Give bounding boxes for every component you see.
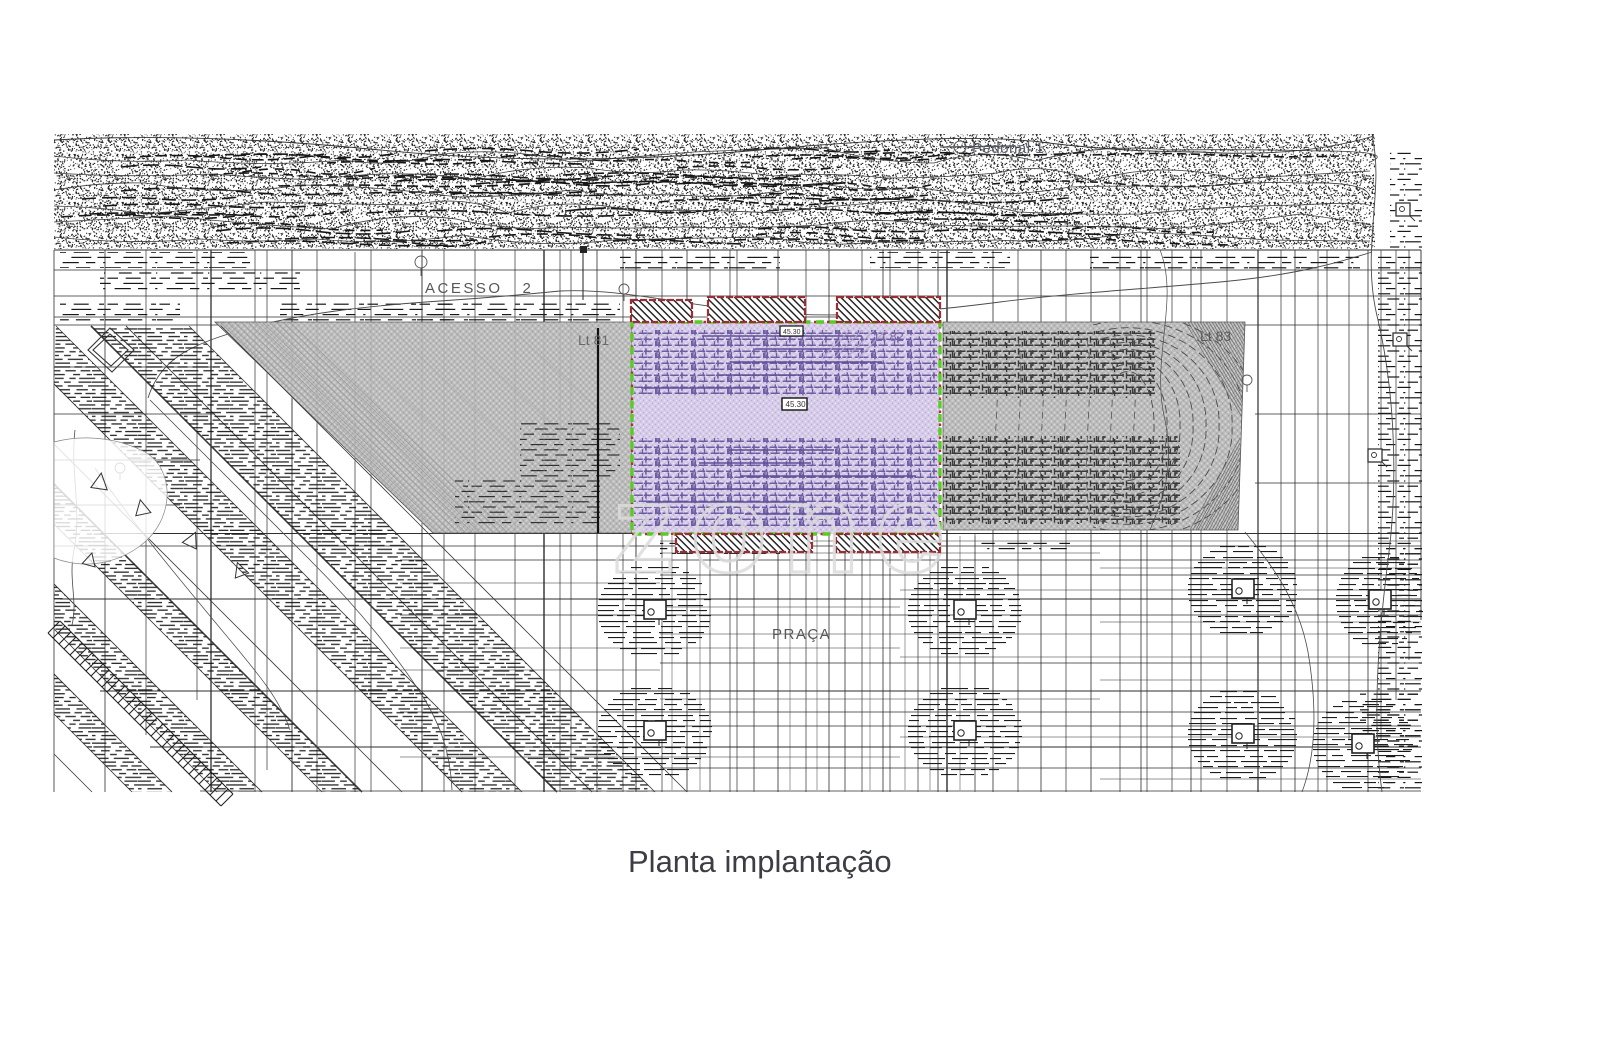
svg-text:45.30: 45.30 bbox=[783, 329, 801, 336]
svg-text:Pedonal 1: Pedonal 1 bbox=[972, 140, 1044, 157]
svg-text:45.30: 45.30 bbox=[786, 400, 807, 409]
svg-text:ACESSO 2: ACESSO 2 bbox=[425, 280, 533, 297]
svg-text:Lt 82: Lt 82 bbox=[875, 329, 904, 344]
svg-text:Lt 81: Lt 81 bbox=[578, 332, 609, 348]
svg-text:zone: zone bbox=[612, 460, 961, 599]
svg-text:Lt 83: Lt 83 bbox=[1200, 328, 1231, 344]
svg-text:PRAÇA: PRAÇA bbox=[772, 626, 831, 643]
svg-text:Planta implantação: Planta implantação bbox=[628, 844, 892, 879]
